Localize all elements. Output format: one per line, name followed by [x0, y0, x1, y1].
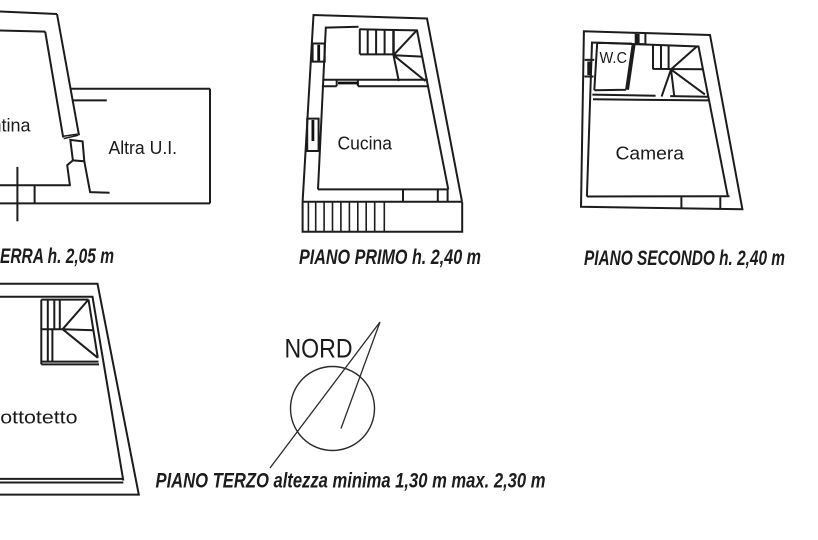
svg-text:Cantina: Cantina	[0, 116, 32, 136]
svg-text:Altra U.I.: Altra U.I.	[109, 138, 178, 158]
svg-text:PIANO PRIMO h. 2,40 m: PIANO PRIMO h. 2,40 m	[299, 246, 481, 269]
svg-text:Cucina: Cucina	[338, 134, 393, 154]
svg-text:W.C: W.C	[600, 50, 628, 67]
svg-text:PIANO TERZO altezza minima 1,3: PIANO TERZO altezza minima 1,30 m max. 2…	[156, 470, 546, 493]
svg-text:ERRA h. 2,05 m: ERRA h. 2,05 m	[0, 245, 114, 268]
svg-text:Sottotetto: Sottotetto	[0, 408, 78, 428]
svg-text:Camera: Camera	[616, 144, 686, 164]
svg-text:NORD: NORD	[285, 334, 353, 364]
svg-text:PIANO SECONDO h. 2,40 m: PIANO SECONDO h. 2,40 m	[584, 247, 785, 270]
